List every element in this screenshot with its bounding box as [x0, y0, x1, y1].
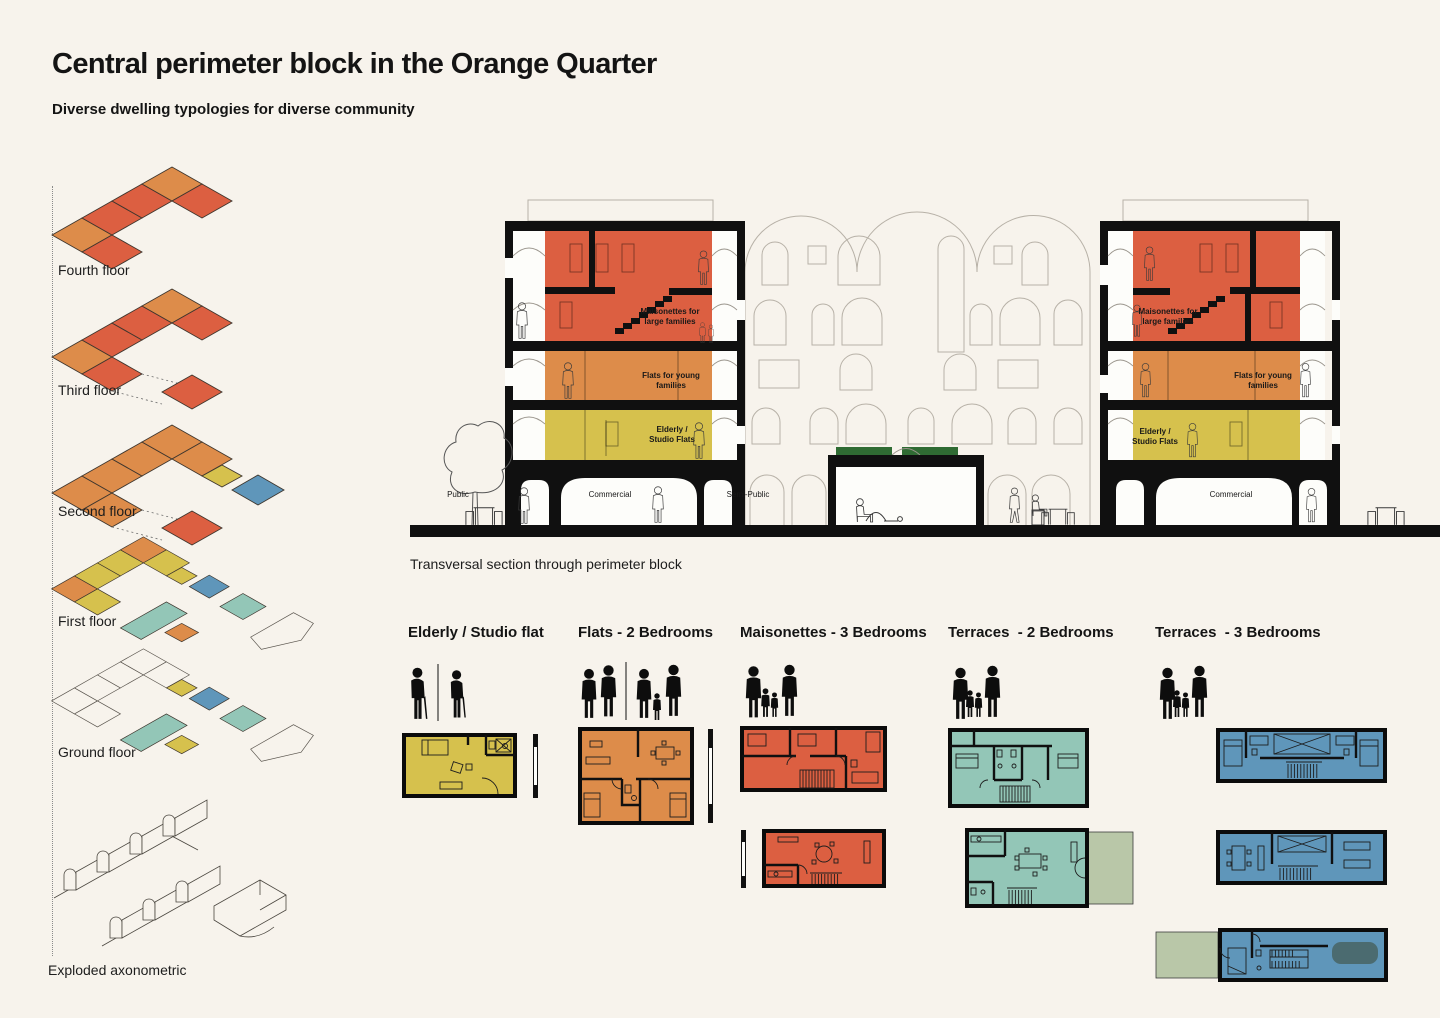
maisonettes-people-icons	[740, 660, 805, 724]
plan-elderly-studio	[402, 733, 517, 798]
left-building-section	[505, 200, 745, 525]
typology-title-elderly: Elderly / Studio flat	[408, 624, 544, 641]
plan-terrace2-upper	[948, 728, 1089, 808]
adult-icon	[746, 666, 761, 717]
fourth-floor-tiles	[52, 167, 232, 269]
second-floor-tiles	[52, 425, 284, 545]
svg-text:Elderly /: Elderly /	[1139, 427, 1171, 436]
adult-icon	[601, 665, 616, 716]
typology-title-flats: Flats - 2 Bedrooms	[578, 624, 713, 641]
transversal-section-drawing: Maisonettes for large families Flats for…	[410, 180, 1440, 558]
adult-icon	[953, 668, 968, 719]
terraces3-people-icons	[1154, 661, 1214, 723]
child-icon	[1182, 692, 1189, 716]
first-floor-label: First floor	[58, 613, 116, 629]
plan-flats-2br	[578, 727, 694, 825]
child-icon	[771, 692, 778, 716]
adult-icon	[637, 669, 652, 718]
svg-text:large families: large families	[644, 317, 696, 326]
right-building-section	[1100, 200, 1340, 525]
adult-icon	[666, 665, 681, 716]
fourth-floor-diagram	[50, 166, 236, 272]
svg-text:Public: Public	[447, 490, 469, 499]
page-title: Central perimeter block in the Orange Qu…	[52, 48, 657, 81]
adult-icon	[582, 669, 597, 718]
elderly-woman-icon	[451, 670, 466, 717]
adult-icon	[782, 665, 797, 716]
svg-text:Studio Flats: Studio Flats	[1132, 437, 1178, 446]
ground-floor-label: Ground floor	[58, 744, 136, 760]
cafe-table-left-icon	[466, 508, 502, 525]
elderly-people-icons	[405, 663, 479, 725]
terraces2-people-icons	[947, 661, 1007, 723]
car-icon	[1332, 942, 1378, 964]
adult-icon	[985, 666, 1000, 717]
garden-terrace2	[1087, 832, 1133, 904]
svg-text:Flats for young: Flats for young	[1234, 371, 1292, 380]
page-subtitle: Diverse dwelling typologies for diverse …	[52, 101, 415, 118]
child-icon	[975, 692, 982, 716]
svg-text:families: families	[1248, 381, 1278, 390]
svg-text:Elderly /: Elderly /	[656, 425, 688, 434]
second-floor-label: Second floor	[58, 503, 137, 519]
third-floor-label: Third floor	[58, 382, 121, 398]
courtyard-pavilion	[828, 447, 984, 525]
svg-text:Maisonettes for: Maisonettes for	[1138, 307, 1197, 316]
poster-page: { "palette":{"bg":"#f7f3ec","ink":"#1414…	[0, 0, 1440, 1018]
fourth-floor-label: Fourth floor	[58, 262, 130, 278]
plan-terrace2-lower	[965, 828, 1137, 908]
ground-line	[410, 525, 1440, 537]
typology-title-terraces3: Terraces - 3 Bedrooms	[1155, 624, 1321, 641]
plan-terrace3-upper	[1216, 728, 1387, 783]
person-seated-courtyard-icon	[1032, 495, 1047, 516]
adult-icon	[1192, 666, 1207, 717]
svg-text:families: families	[656, 381, 686, 390]
plan-maisonette-upper	[740, 726, 887, 792]
plan-terrace3-mid	[1216, 830, 1387, 885]
cafe-table-right-icon	[1368, 508, 1404, 525]
child-icon	[761, 688, 770, 717]
scalebar-flats	[708, 729, 713, 823]
tree-outline	[444, 422, 512, 525]
typology-title-maisonettes: Maisonettes - 3 Bedrooms	[740, 624, 927, 641]
svg-text:Commercial: Commercial	[589, 490, 632, 499]
person-walking-courtyard-icon	[1010, 488, 1020, 522]
svg-text:Commercial: Commercial	[1210, 490, 1253, 499]
garden-terrace3	[1156, 932, 1218, 978]
svg-text:large families: large families	[1142, 317, 1194, 326]
exploded-axonometric-drawing	[46, 806, 296, 956]
flats-people-icons	[576, 660, 691, 726]
adult-icon	[1160, 668, 1175, 719]
svg-text:Flats for young: Flats for young	[642, 371, 700, 380]
child-icon	[653, 693, 661, 720]
plan-maisonette-lower	[762, 829, 886, 888]
first-floor-diagram	[50, 536, 318, 651]
axonometric-caption: Exploded axonometric	[48, 962, 187, 978]
axon-houses	[54, 800, 286, 946]
elderly-man-icon	[411, 668, 427, 719]
scalebar-maisonette	[741, 830, 746, 888]
svg-text:Semi-Public: Semi-Public	[727, 490, 770, 499]
typology-title-terraces2: Terraces - 2 Bedrooms	[948, 624, 1114, 641]
first-floor-tiles	[52, 537, 314, 650]
plan-terrace3-ground	[1152, 926, 1392, 984]
section-caption: Transversal section through perimeter bl…	[410, 556, 682, 572]
svg-text:Studio Flats: Studio Flats	[649, 435, 695, 444]
svg-text:Maisonettes for: Maisonettes for	[640, 307, 699, 316]
scalebar-elderly	[533, 734, 538, 798]
